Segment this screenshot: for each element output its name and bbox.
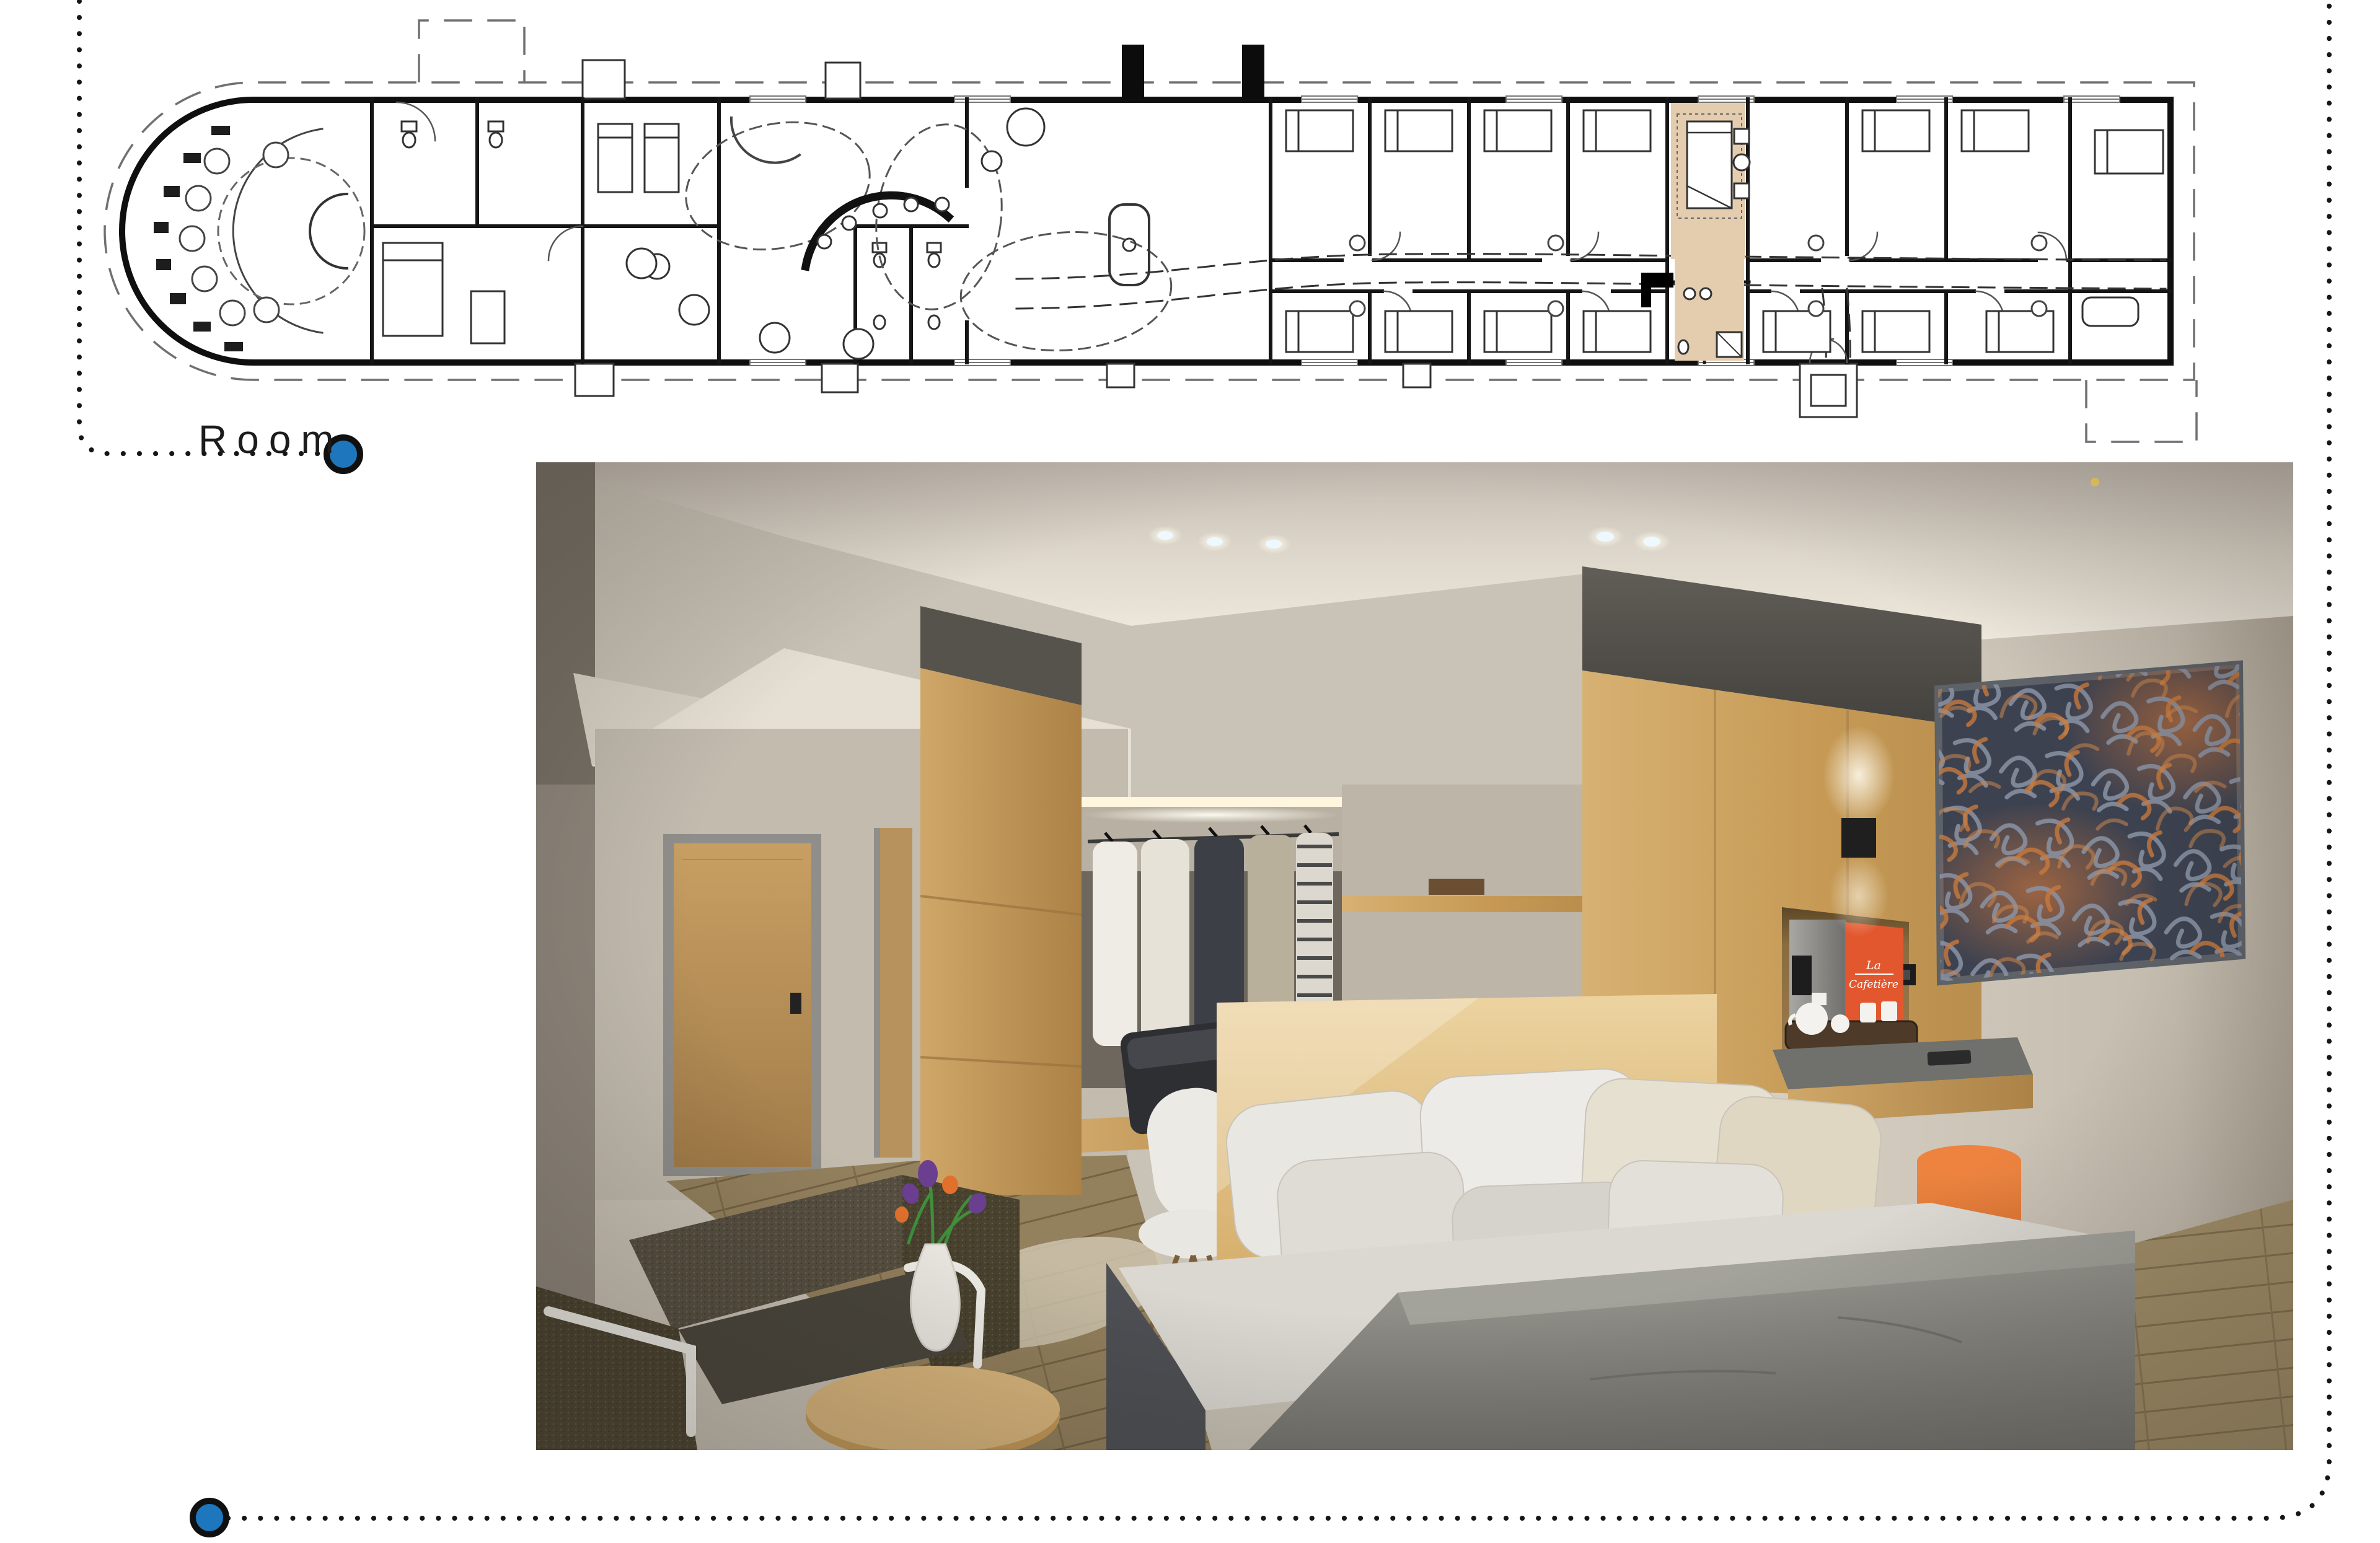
room-section-label: Room	[198, 416, 344, 462]
floor-plan	[105, 20, 2197, 442]
render-vignette	[536, 462, 2293, 1450]
flow-marker-icon	[193, 1501, 226, 1534]
room-render: La Cafetière	[536, 462, 2303, 1461]
presentation-page: La Cafetière	[0, 0, 2380, 1543]
plan-columns	[1122, 45, 1264, 99]
